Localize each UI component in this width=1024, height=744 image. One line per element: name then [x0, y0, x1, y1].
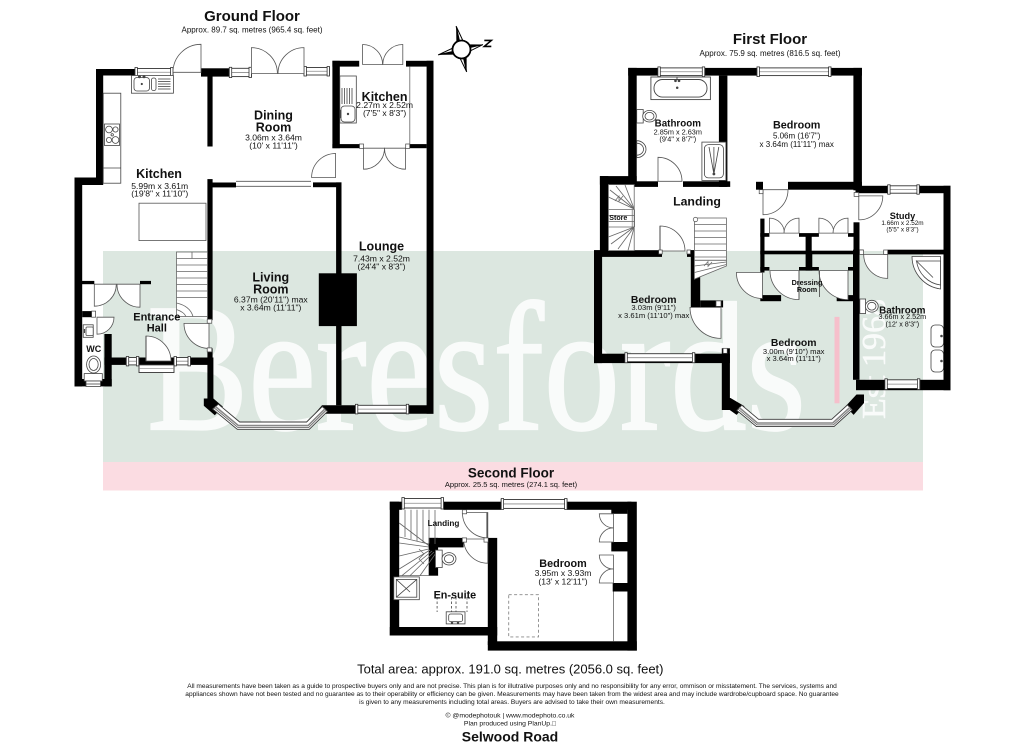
svg-text:© @modephotouk | www.modephoto: © @modephotouk | www.modephoto.co.uk [446, 712, 576, 720]
svg-text:Second Floor: Second Floor [468, 465, 555, 480]
svg-text:Landing: Landing [673, 195, 721, 209]
svg-text:x 3.64m (11'11"): x 3.64m (11'11") [767, 354, 822, 363]
svg-text:All measurements have been tak: All measurements have been taken as a gu… [187, 683, 837, 690]
svg-text:(24'4" x 8'3"): (24'4" x 8'3") [357, 261, 405, 271]
svg-text:(13' x 12'11"): (13' x 12'11") [538, 577, 587, 587]
svg-text:Approx. 25.5 sq. metres (274.1: Approx. 25.5 sq. metres (274.1 sq. feet) [445, 480, 578, 489]
svg-text:(10' x 11'11"): (10' x 11'11") [249, 140, 298, 150]
svg-text:Approx. 89.7 sq. metres (965.4: Approx. 89.7 sq. metres (965.4 sq. feet) [182, 26, 323, 35]
svg-text:(7'5" x 8'3"): (7'5" x 8'3") [363, 108, 406, 118]
svg-text:Ground Floor: Ground Floor [204, 8, 300, 25]
svg-text:Store: Store [609, 214, 627, 222]
svg-text:is given to any measurements i: is given to any measurements including t… [359, 699, 665, 706]
svg-text:WC: WC [86, 344, 101, 354]
svg-text:(5'5" x 8'3"): (5'5" x 8'3") [886, 227, 918, 234]
svg-text:Total area: approx. 191.0 sq.: Total area: approx. 191.0 sq. metres (20… [357, 662, 663, 677]
svg-text:(9'4" x 8'7"): (9'4" x 8'7") [659, 135, 696, 144]
svg-text:Room: Room [797, 285, 817, 294]
svg-text:Lounge: Lounge [359, 240, 404, 254]
svg-text:En-suite: En-suite [434, 589, 477, 601]
svg-text:Landing: Landing [428, 519, 460, 528]
svg-text:x 3.64m (11'11"): x 3.64m (11'11") [240, 302, 301, 312]
svg-text:x 3.61m (11'10") max: x 3.61m (11'10") max [618, 311, 689, 320]
svg-text:Kitchen: Kitchen [136, 167, 182, 181]
svg-text:appliances shown have not been: appliances shown have not been tested an… [185, 691, 839, 698]
svg-text:(19'8" x 11'10"): (19'8" x 11'10") [131, 189, 188, 199]
svg-text:Hall: Hall [147, 323, 167, 335]
svg-text:Selwood Road: Selwood Road [462, 729, 558, 744]
svg-text:(12' x 8'3"): (12' x 8'3") [885, 320, 919, 329]
svg-text:Bedroom: Bedroom [773, 120, 820, 132]
svg-text:First Floor: First Floor [733, 31, 807, 48]
svg-text:Plan produced using PlanUp.□: Plan produced using PlanUp.□ [464, 721, 556, 728]
svg-text:x 3.64m (11'11") max: x 3.64m (11'11") max [760, 140, 834, 149]
svg-text:Approx. 75.9 sq. metres (816.5: Approx. 75.9 sq. metres (816.5 sq. feet) [700, 49, 841, 58]
